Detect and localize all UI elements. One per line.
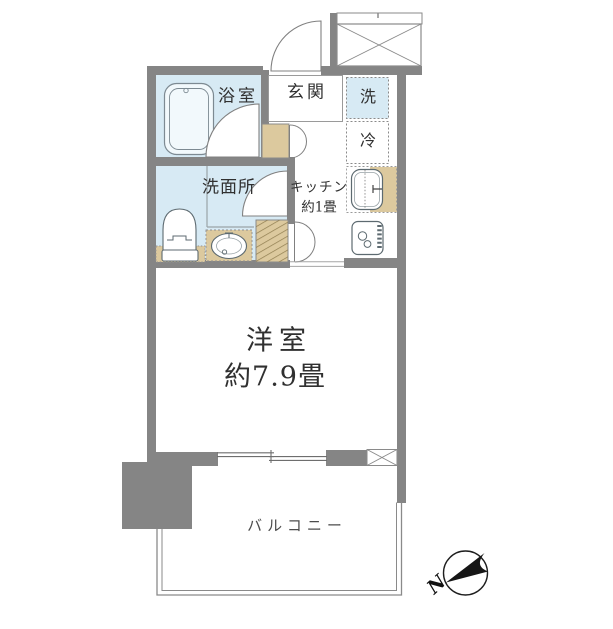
pillar-block: [122, 462, 192, 529]
balcony-label: バルコニー: [247, 519, 347, 534]
wall-room-bottom-mid: [326, 450, 368, 466]
bathroom-label: 浴室: [218, 89, 258, 106]
main-room-label-line1: 洋室: [246, 328, 312, 355]
room-threshold: [290, 262, 344, 267]
meter-box: [337, 13, 422, 66]
entrance-label: 玄関: [287, 85, 327, 102]
shoe-cabinet-doors: [290, 125, 307, 158]
kitchen-sink: [347, 167, 398, 213]
wall-right: [397, 66, 406, 503]
washer-label: 洗: [360, 89, 376, 105]
washbasin: [206, 230, 252, 261]
storage-doors: [295, 222, 316, 262]
wall-meter-stub: [330, 13, 337, 66]
kitchen-label-line2: 約1畳: [301, 201, 337, 215]
shutter-box: [367, 450, 397, 466]
kitchen-label-line1: キッチン: [290, 181, 348, 195]
wall-top-right: [321, 66, 422, 75]
compass: [444, 551, 489, 595]
floor-plan: 浴室 玄関 洗 冷 洗面所 キッチン 約1畳 洋室 約7.9畳 バルコニー N: [0, 0, 613, 629]
wall-top-left: [147, 66, 263, 75]
bathtub: [165, 84, 214, 155]
stove: [352, 222, 383, 255]
window: [217, 450, 327, 463]
washroom-label: 洗面所: [202, 180, 256, 197]
entrance-door-arc: [271, 21, 321, 71]
main-room-label-line2: 約7.9畳: [224, 364, 326, 391]
fridge-label: 冷: [360, 133, 376, 149]
shoe-cabinet: [262, 124, 289, 158]
wall-kitchen-bottom: [344, 258, 406, 268]
storage-hatch: [256, 220, 288, 262]
